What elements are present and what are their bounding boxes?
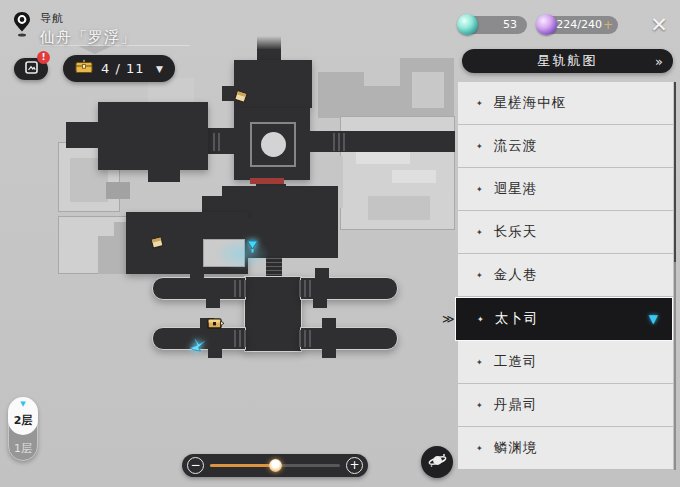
- title-banner-notch: [78, 46, 112, 54]
- map-corridor: [300, 327, 398, 350]
- treasure-count: 4 / 11: [101, 61, 148, 76]
- map-room: [322, 318, 336, 328]
- map-room: [206, 299, 220, 308]
- zoom-in-button[interactable]: +: [346, 457, 363, 474]
- floor-selector: ▼ 2层 1层: [8, 397, 38, 461]
- teleport-anchor-marker[interactable]: [245, 239, 260, 258]
- zoom-knob[interactable]: [269, 459, 282, 472]
- origami-bird-marker[interactable]: [188, 336, 207, 357]
- star-bullet-icon: ✦: [477, 315, 485, 324]
- map-underlay-block: [368, 196, 430, 220]
- star-rail-map-button[interactable]: 星轨航图 »: [462, 49, 673, 73]
- map-room: [190, 268, 204, 278]
- selection-pointer-icon: ≫: [442, 312, 456, 326]
- trailblaze-power-orb-icon: [536, 14, 557, 35]
- star-bullet-icon: ✦: [476, 142, 484, 151]
- star-bullet-icon: ✦: [476, 228, 484, 237]
- fuel-value: 53: [503, 18, 517, 31]
- universe-view-button[interactable]: [421, 446, 453, 478]
- map-room: [98, 102, 208, 170]
- map-stairs: [299, 280, 311, 297]
- notification-badge: !: [37, 51, 50, 64]
- treasure-chest-marker[interactable]: [206, 314, 225, 335]
- planet-icon: [427, 450, 448, 475]
- star-bullet-icon: ✦: [476, 358, 484, 367]
- teleport-glow: [214, 238, 270, 270]
- zoom-track[interactable]: [210, 464, 340, 467]
- trailblaze-power-value: 224/240: [556, 18, 602, 31]
- region-label: 金人巷: [494, 266, 538, 284]
- star-bullet-icon: ✦: [476, 401, 484, 410]
- scrollbar-thumb[interactable]: [674, 82, 676, 262]
- region-label: 流云渡: [494, 137, 538, 155]
- location-pin-icon: [12, 11, 32, 47]
- map-stairs: [333, 133, 345, 151]
- map-underlay-block: [106, 182, 130, 199]
- region-item[interactable]: ✦迴星港: [458, 168, 673, 211]
- floor-2-button[interactable]: ▼ 2层: [8, 397, 38, 435]
- chevron-down-icon: ▼: [8, 400, 38, 409]
- map-underlay-block: [98, 236, 126, 274]
- map-central-circle: [261, 132, 286, 157]
- treasure-puzzle-marker[interactable]: [233, 88, 249, 108]
- star-bullet-icon: ✦: [476, 444, 484, 453]
- region-label: 丹鼎司: [494, 396, 538, 414]
- map-stairs: [234, 280, 246, 297]
- world-name: 仙舟「罗浮」: [40, 28, 136, 47]
- region-label: 迴星港: [494, 180, 538, 198]
- map-room: [244, 276, 302, 352]
- scrollbar[interactable]: [674, 82, 676, 470]
- region-item-selected[interactable]: ≫ ✦ 太卜司 ▼: [455, 297, 673, 341]
- map-room: [315, 268, 329, 278]
- region-label: 太卜司: [495, 310, 539, 328]
- floor-2-label: 2层: [14, 414, 33, 427]
- region-item[interactable]: ✦丹鼎司: [458, 384, 673, 427]
- treasure-counter-dropdown[interactable]: 4 / 11 ▼: [63, 55, 175, 82]
- treasure-chest-icon: [75, 59, 93, 78]
- region-item[interactable]: ✦工造司: [458, 341, 673, 384]
- zoom-fill: [210, 464, 275, 467]
- region-item[interactable]: ✦鳞渊境: [458, 427, 673, 470]
- map-stairs: [213, 133, 223, 151]
- region-list: ✦星槎海中枢 ✦流云渡 ✦迴星港 ✦长乐天 ✦金人巷 ≫ ✦ 太卜司 ▼ ✦工造…: [458, 82, 673, 470]
- map-corridor-fade: [257, 36, 281, 50]
- map-room: [313, 299, 327, 308]
- chevron-down-icon: ▼: [649, 312, 659, 326]
- map-underlay-block: [412, 72, 444, 108]
- photo-journal-icon: [24, 60, 39, 79]
- star-bullet-icon: ✦: [476, 185, 484, 194]
- region-item[interactable]: ✦流云渡: [458, 125, 673, 168]
- map-room: [148, 168, 180, 182]
- nav-label: 导航: [40, 11, 136, 26]
- map-room: [208, 349, 222, 358]
- chevron-down-icon: ▼: [156, 64, 163, 74]
- map-corridor: [300, 277, 398, 300]
- add-icon[interactable]: +: [603, 18, 613, 32]
- region-item[interactable]: ✦星槎海中枢: [458, 82, 673, 125]
- fuel-orb-icon: [457, 14, 478, 35]
- map-room: [66, 122, 100, 148]
- currency-trailblaze-power[interactable]: 224/240 +: [538, 16, 618, 34]
- expand-icon: »: [655, 54, 661, 69]
- region-label: 星槎海中枢: [494, 94, 567, 112]
- region-item[interactable]: ✦长乐天: [458, 211, 673, 254]
- map-underlay-block: [318, 72, 364, 118]
- star-bullet-icon: ✦: [476, 271, 484, 280]
- page-title: 导航 仙舟「罗浮」: [12, 11, 136, 47]
- sidebar-title: 星轨航图: [538, 52, 598, 70]
- region-sidebar: 星轨航图 » ✦星槎海中枢 ✦流云渡 ✦迴星港 ✦长乐天 ✦金人巷 ≫ ✦ 太卜…: [455, 0, 680, 487]
- currency-fuel[interactable]: 53: [459, 16, 527, 34]
- map-stairs: [234, 330, 246, 347]
- map-corridor: [152, 277, 246, 300]
- map-corridor: [310, 131, 455, 152]
- map-screen: 导航 仙舟「罗浮」 ! 4 / 11 ▼ 53 224/240 + ✕ 星轨航图…: [0, 0, 680, 487]
- close-icon[interactable]: ✕: [644, 10, 674, 40]
- map-underlay-block: [392, 170, 436, 183]
- map-blocked-gate: [250, 178, 284, 184]
- region-label: 长乐天: [494, 223, 538, 241]
- star-bullet-icon: ✦: [476, 99, 484, 108]
- zoom-slider: − +: [182, 454, 368, 477]
- map-underlay-block: [362, 86, 404, 120]
- region-item[interactable]: ✦金人巷: [458, 254, 673, 297]
- region-label: 工造司: [494, 353, 538, 371]
- map-stairs: [299, 330, 311, 347]
- treasure-puzzle-marker[interactable]: [149, 234, 165, 254]
- floor-1-button[interactable]: 1层: [9, 441, 37, 456]
- zoom-out-button[interactable]: −: [187, 457, 204, 474]
- region-label: 鳞渊境: [494, 439, 538, 457]
- map-room: [322, 349, 336, 358]
